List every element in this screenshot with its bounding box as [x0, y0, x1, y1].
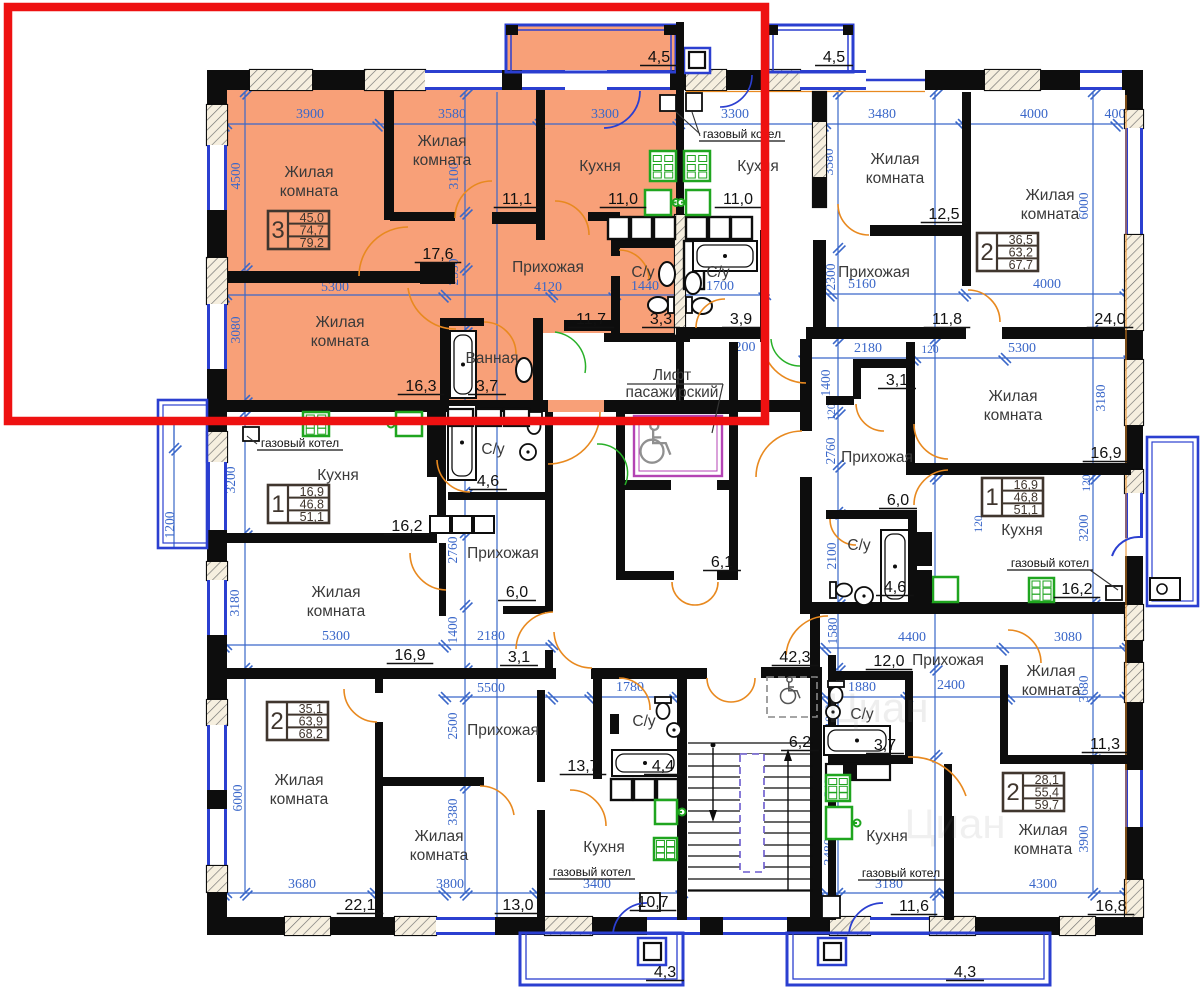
svg-text:Жилая: Жилая: [284, 164, 333, 181]
svg-text:Кухня: Кухня: [317, 467, 358, 484]
svg-text:комната: комната: [307, 603, 366, 620]
svg-text:16,3: 16,3: [405, 378, 436, 395]
svg-text:Ванная: Ванная: [465, 350, 518, 367]
svg-text:газовый котел: газовый котел: [1011, 556, 1089, 570]
svg-text:комната: комната: [1021, 206, 1080, 223]
svg-text:4,6: 4,6: [477, 473, 499, 490]
svg-text:3580: 3580: [438, 107, 466, 122]
svg-text:120: 120: [826, 403, 838, 421]
svg-text:12,5: 12,5: [928, 206, 959, 223]
svg-text:3,9: 3,9: [730, 311, 752, 328]
svg-text:6000: 6000: [230, 784, 245, 811]
svg-text:3300: 3300: [721, 107, 749, 122]
svg-text:2180: 2180: [854, 341, 882, 356]
svg-text:3180: 3180: [1093, 384, 1108, 411]
svg-text:51,1: 51,1: [300, 510, 324, 524]
svg-text:4,3: 4,3: [954, 964, 976, 981]
svg-text:2: 2: [980, 239, 993, 266]
svg-text:12,0: 12,0: [873, 653, 904, 670]
svg-text:Жилая: Жилая: [988, 388, 1037, 405]
svg-text:4000: 4000: [1020, 107, 1048, 122]
svg-text:комната: комната: [311, 333, 370, 350]
svg-text:Жилая: Жилая: [1018, 822, 1067, 839]
svg-text:11,0: 11,0: [608, 191, 638, 208]
svg-text:16,9: 16,9: [394, 647, 425, 664]
svg-text:3,3: 3,3: [650, 311, 672, 328]
svg-text:3,1: 3,1: [508, 649, 530, 666]
svg-text:51,1: 51,1: [1014, 503, 1038, 517]
svg-text:67,7: 67,7: [1009, 258, 1033, 272]
svg-text:3900: 3900: [1076, 825, 1091, 852]
svg-text:газовый котел: газовый котел: [862, 866, 940, 880]
svg-text:Прихожая: Прихожая: [912, 652, 984, 669]
svg-text:3180: 3180: [227, 589, 242, 616]
svg-text:Прихожая: Прихожая: [467, 722, 539, 739]
svg-text:Прихожая: Прихожая: [838, 264, 910, 281]
svg-text:С/у: С/у: [847, 537, 871, 554]
svg-text:6,2: 6,2: [789, 734, 811, 751]
svg-text:10,7: 10,7: [637, 894, 668, 911]
svg-text:2: 2: [270, 708, 283, 735]
svg-text:13,0: 13,0: [502, 897, 533, 914]
svg-text:2760: 2760: [445, 536, 460, 563]
svg-text:комната: комната: [413, 152, 472, 169]
svg-text:5500: 5500: [477, 681, 505, 696]
svg-text:16,9: 16,9: [1090, 445, 1121, 462]
svg-text:4,3: 4,3: [654, 964, 676, 981]
svg-text:3200: 3200: [1076, 514, 1091, 541]
svg-text:5300: 5300: [322, 629, 350, 644]
svg-text:2180: 2180: [477, 629, 505, 644]
svg-text:2760: 2760: [823, 437, 838, 464]
svg-text:17,6: 17,6: [422, 246, 453, 263]
svg-text:24,0: 24,0: [1094, 311, 1125, 328]
svg-text:3080: 3080: [1054, 630, 1082, 645]
svg-text:1440: 1440: [631, 279, 659, 294]
svg-text:Жилая: Жилая: [315, 314, 364, 331]
svg-text:Прихожая: Прихожая: [467, 545, 539, 562]
svg-text:120: 120: [1081, 474, 1093, 492]
svg-text:1200: 1200: [162, 511, 177, 538]
svg-text:6,1: 6,1: [711, 554, 733, 571]
svg-text:11,7: 11,7: [576, 311, 606, 328]
svg-text:5300: 5300: [1008, 341, 1036, 356]
svg-text:11,8: 11,8: [932, 311, 962, 328]
svg-text:22,1: 22,1: [344, 897, 375, 914]
svg-text:Кухня: Кухня: [866, 828, 907, 845]
svg-text:1: 1: [271, 491, 284, 518]
svg-text:4,5: 4,5: [823, 49, 845, 66]
svg-text:1700: 1700: [706, 279, 734, 294]
svg-text:3300: 3300: [591, 107, 619, 122]
svg-text:пасажирский: пасажирский: [626, 384, 719, 401]
svg-text:4,5: 4,5: [648, 49, 670, 66]
svg-text:2100: 2100: [824, 542, 839, 569]
svg-text:1580: 1580: [825, 617, 840, 644]
svg-text:400: 400: [1105, 107, 1126, 122]
svg-text:Жилая: Жилая: [274, 772, 323, 789]
svg-text:68,2: 68,2: [299, 727, 323, 741]
svg-text:11,3: 11,3: [1090, 736, 1120, 753]
svg-text:4,6: 4,6: [884, 579, 906, 596]
svg-text:6,0: 6,0: [887, 492, 909, 509]
svg-text:4120: 4120: [534, 280, 562, 295]
svg-text:С/у: С/у: [632, 713, 656, 730]
svg-text:Циан: Циан: [904, 800, 1005, 847]
svg-text:3800: 3800: [436, 877, 464, 892]
svg-text:С/у: С/у: [706, 264, 730, 281]
svg-text:11,1: 11,1: [502, 191, 532, 208]
svg-text:4000: 4000: [1033, 277, 1061, 292]
svg-text:42,3: 42,3: [779, 649, 810, 666]
svg-text:Кухня: Кухня: [1001, 522, 1042, 539]
svg-text:120: 120: [921, 344, 939, 356]
svg-text:11,0: 11,0: [723, 191, 753, 208]
svg-text:1780: 1780: [616, 680, 644, 695]
svg-text:Прихожая: Прихожая: [512, 259, 584, 276]
svg-text:11,6: 11,6: [899, 898, 929, 915]
svg-text:79,2: 79,2: [300, 236, 324, 250]
svg-text:3080: 3080: [228, 316, 243, 343]
svg-text:Жилая: Жилая: [870, 151, 919, 168]
svg-text:Прихожая: Прихожая: [841, 449, 913, 466]
svg-text:Кухня: Кухня: [579, 158, 620, 175]
svg-text:16,2: 16,2: [1061, 581, 1092, 598]
svg-text:4,4: 4,4: [652, 758, 674, 775]
svg-text:1400: 1400: [445, 616, 460, 643]
svg-text:комната: комната: [1014, 841, 1073, 858]
svg-text:1: 1: [985, 484, 998, 511]
svg-text:С/у: С/у: [481, 441, 505, 458]
svg-text:2: 2: [1006, 779, 1019, 806]
svg-text:4400: 4400: [898, 630, 926, 645]
svg-text:С/у: С/у: [631, 264, 655, 281]
svg-text:3680: 3680: [288, 877, 316, 892]
svg-text:Кухня: Кухня: [583, 839, 624, 856]
svg-text:комната: комната: [866, 170, 925, 187]
svg-text:Жилая: Жилая: [417, 133, 466, 150]
svg-text:4500: 4500: [228, 162, 243, 189]
svg-text:3,1: 3,1: [886, 372, 908, 389]
svg-text:13,7: 13,7: [567, 758, 598, 775]
svg-text:59,7: 59,7: [1035, 798, 1059, 812]
svg-text:4300: 4300: [1029, 877, 1057, 892]
svg-text:16,8: 16,8: [1095, 898, 1126, 915]
svg-text:комната: комната: [280, 183, 339, 200]
svg-text:3: 3: [271, 217, 284, 244]
svg-text:2400: 2400: [937, 678, 965, 693]
svg-text:Кухня: Кухня: [737, 158, 778, 175]
svg-text:Жилая: Жилая: [1026, 663, 1075, 680]
svg-text:газовый котел: газовый котел: [553, 865, 631, 879]
svg-text:газовый котел: газовый котел: [261, 436, 339, 450]
svg-text:Жилая: Жилая: [1025, 187, 1074, 204]
svg-text:Жилая: Жилая: [414, 828, 463, 845]
svg-text:2500: 2500: [445, 712, 460, 739]
svg-text:16,2: 16,2: [391, 518, 422, 535]
svg-text:комната: комната: [410, 847, 469, 864]
svg-text:Жилая: Жилая: [311, 584, 360, 601]
svg-text:1400: 1400: [818, 369, 833, 396]
svg-text:3,7: 3,7: [874, 737, 896, 754]
svg-text:комната: комната: [1022, 682, 1081, 699]
svg-text:комната: комната: [270, 791, 329, 808]
svg-text:газовый котел: газовый котел: [703, 127, 781, 141]
svg-text:3480: 3480: [868, 107, 896, 122]
svg-text:комната: комната: [984, 407, 1043, 424]
svg-text:3,7: 3,7: [476, 378, 498, 395]
svg-text:3380: 3380: [445, 798, 460, 825]
svg-text:Циан: Циан: [827, 684, 928, 731]
svg-text:6,0: 6,0: [506, 584, 528, 601]
svg-text:3900: 3900: [296, 107, 324, 122]
svg-text:120: 120: [973, 515, 985, 533]
svg-text:Лифт: Лифт: [653, 367, 691, 384]
